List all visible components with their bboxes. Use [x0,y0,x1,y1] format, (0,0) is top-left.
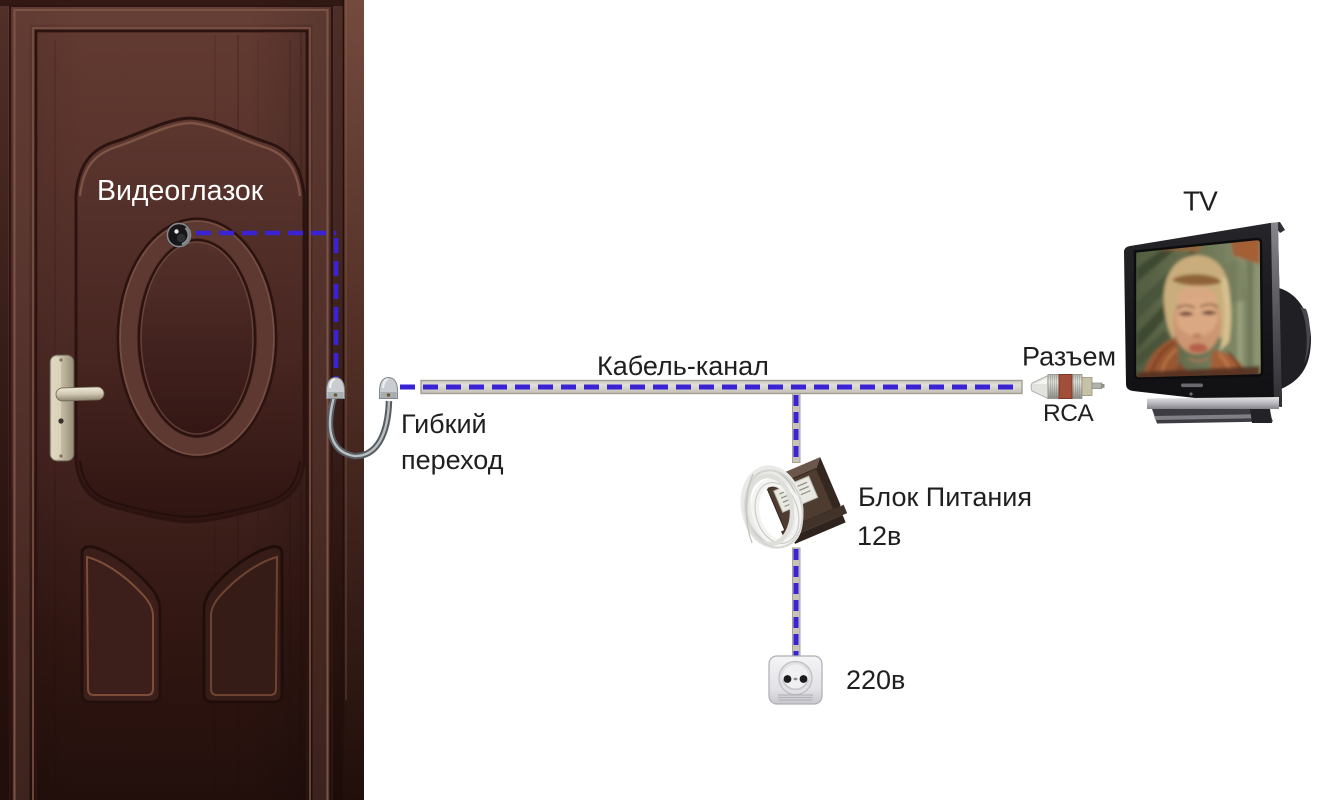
svg-text:12в: 12в [857,521,901,551]
svg-text:TV: TV [1183,186,1218,217]
svg-text:Видеоглазок: Видеоглазок [97,175,264,207]
svg-text:RCA: RCA [1043,400,1094,427]
svg-text:Разъем: Разъем [1022,342,1116,372]
svg-text:переход: переход [401,445,504,475]
svg-text:Гибкий: Гибкий [401,409,487,439]
svg-text:Кабель-канал: Кабель-канал [597,351,769,381]
svg-text:Блок Питания: Блок Питания [858,482,1032,512]
svg-text:220в: 220в [846,665,905,695]
